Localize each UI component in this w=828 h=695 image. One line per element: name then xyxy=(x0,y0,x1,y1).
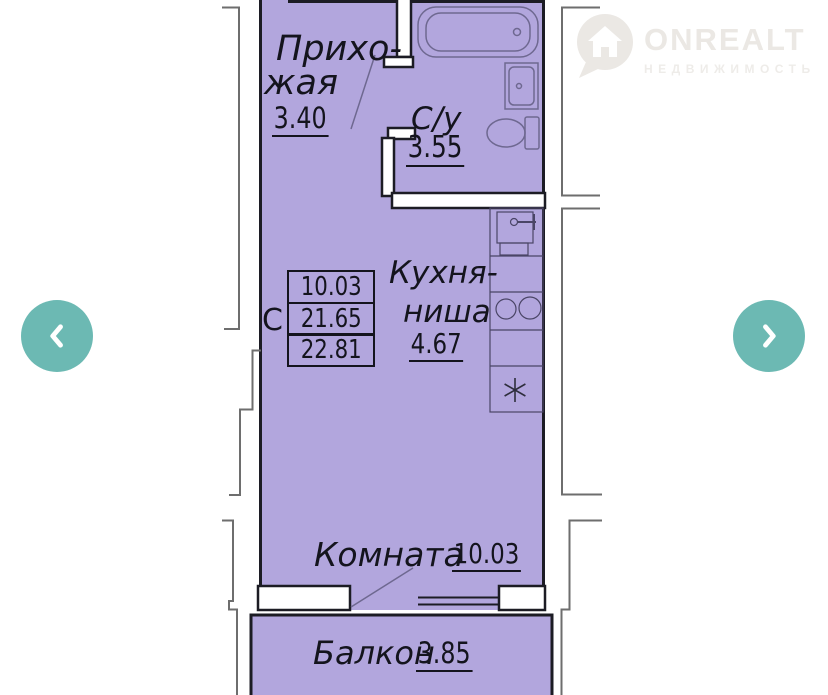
room-label: Комната xyxy=(314,538,464,571)
previous-photo-button[interactable] xyxy=(21,300,93,372)
chevron-right-icon xyxy=(752,319,786,353)
area-table-letter: С xyxy=(262,306,283,336)
kitchen-area: 4.67 xyxy=(409,330,475,362)
hallway-label-line1: Прихо- xyxy=(276,32,402,67)
neighbor-outline-left-mid xyxy=(229,351,261,496)
kitchen-label-line2: ниша xyxy=(403,297,491,328)
neighbor-outline-left-bottom xyxy=(222,521,237,695)
hallway-label-line2: жая xyxy=(264,66,338,101)
neighbor-outline-right-top xyxy=(562,8,600,196)
neighbor-outline-right-bottom xyxy=(562,521,603,695)
chevron-left-icon xyxy=(40,319,74,353)
photo-gallery-stage: ONREALT НЕДВИЖИМОСТЬ xyxy=(0,0,828,695)
bathroom-area: 3.55 xyxy=(406,133,477,167)
area-table-row: 21.65 xyxy=(287,302,375,336)
area-table-row: 10.03 xyxy=(287,270,375,304)
room-area: 10.03 xyxy=(452,540,536,572)
balcony-area: 3.85 xyxy=(416,639,485,672)
neighbor-outline-right-mid xyxy=(562,209,602,495)
kitchen-label-line1: Кухня- xyxy=(389,258,498,289)
next-photo-button[interactable] xyxy=(733,300,805,372)
hallway-area: 3.40 xyxy=(272,104,341,137)
area-table-row: 22.81 xyxy=(287,333,375,367)
neighbor-outline-left-top xyxy=(222,8,239,330)
area-table: 10.03 21.65 22.81 xyxy=(287,270,375,367)
bathroom-bottom-wall xyxy=(392,193,545,208)
